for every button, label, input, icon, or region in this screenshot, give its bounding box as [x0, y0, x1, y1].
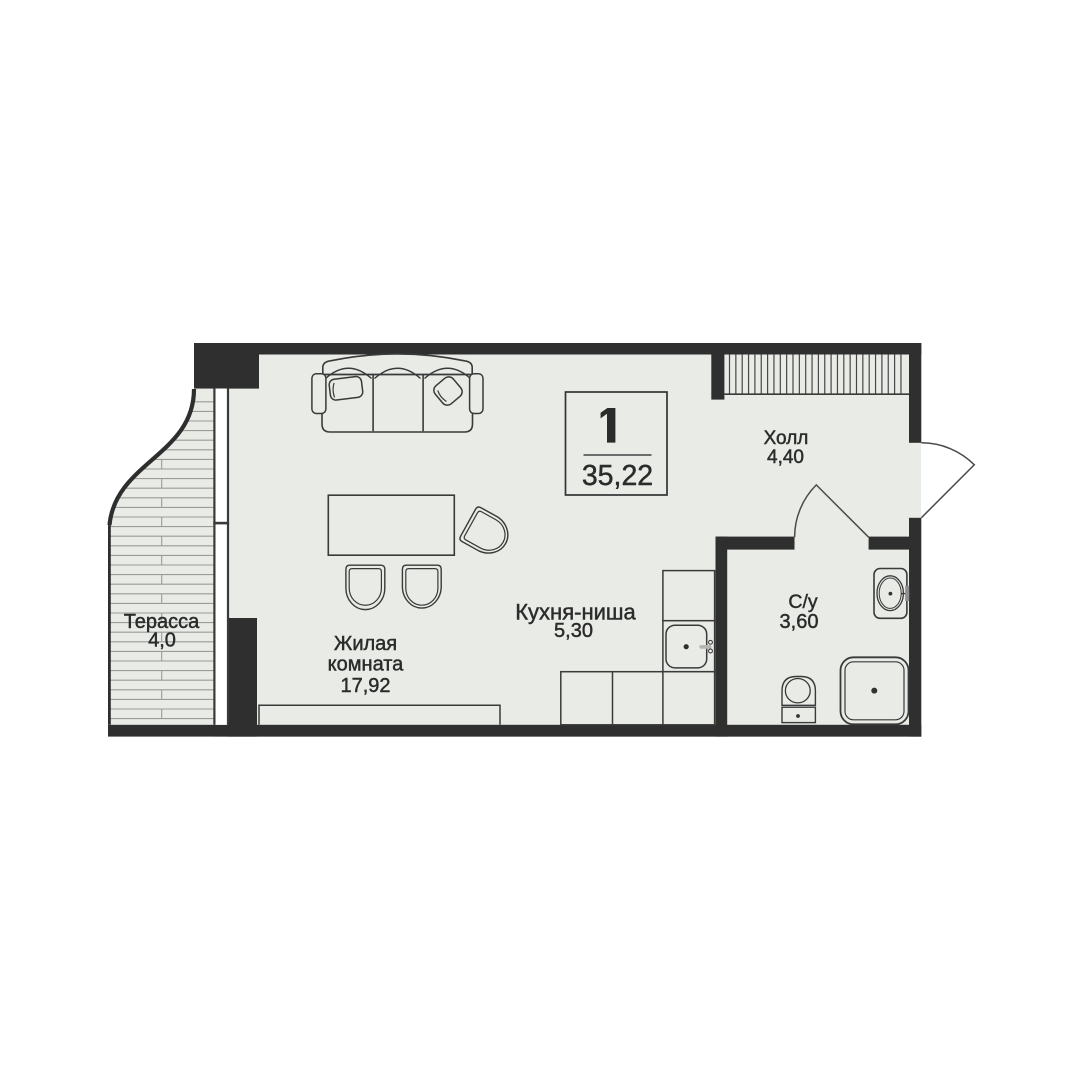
svg-text:3,60: 3,60: [780, 611, 819, 633]
svg-text:Жилая: Жилая: [334, 633, 397, 655]
svg-text:5,30: 5,30: [554, 620, 593, 642]
svg-text:4,40: 4,40: [767, 447, 804, 468]
svg-text:17,92: 17,92: [340, 675, 390, 697]
svg-text:комната: комната: [328, 653, 405, 675]
svg-text:Холл: Холл: [764, 428, 809, 449]
svg-text:35,22: 35,22: [582, 460, 653, 492]
svg-text:С/у: С/у: [788, 591, 818, 613]
svg-text:4,0: 4,0: [148, 630, 176, 652]
